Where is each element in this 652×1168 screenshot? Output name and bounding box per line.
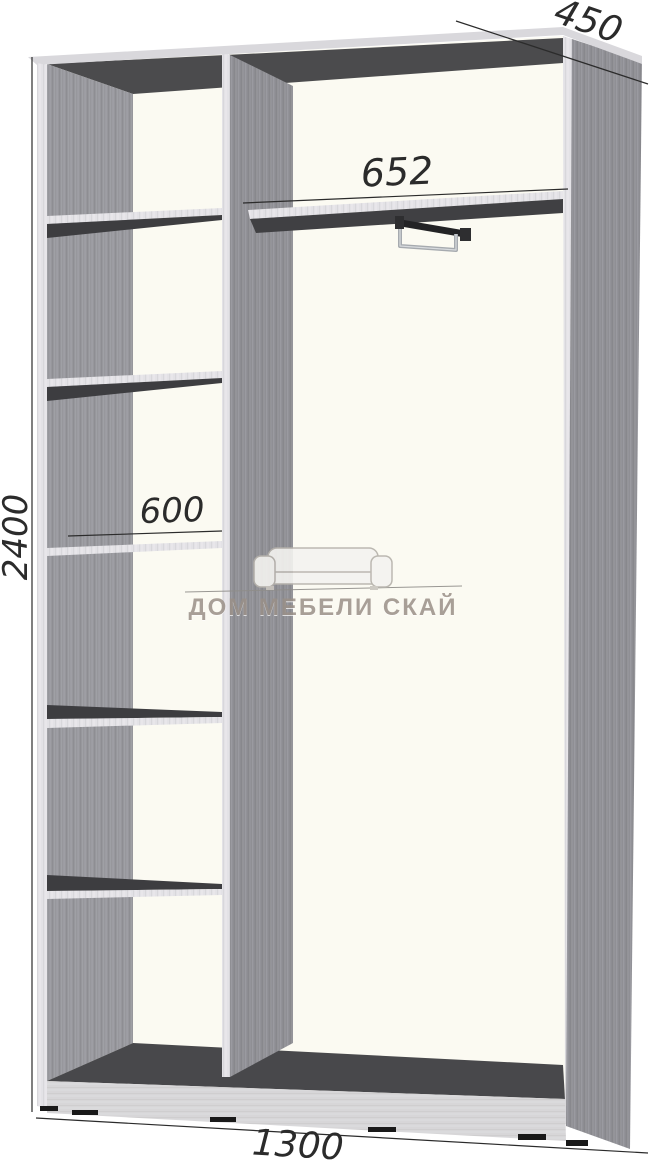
foot xyxy=(518,1134,546,1140)
dim-label-overall-width: 1300 xyxy=(251,1125,343,1166)
sofa-seat xyxy=(262,572,384,584)
hanger-mount-right xyxy=(460,228,471,241)
sofa-armrest-left xyxy=(254,556,275,587)
left-side-panel xyxy=(37,63,47,1108)
wardrobe-diagram: 2400 450 652 600 1300 ДОМ МЕБЕЛИ СКАЙ xyxy=(0,0,652,1168)
sofa-armrest-right xyxy=(371,556,392,587)
foot xyxy=(40,1106,58,1111)
foot xyxy=(72,1110,98,1115)
foot xyxy=(210,1117,236,1122)
sofa-backrest xyxy=(268,548,378,574)
sofa-foot xyxy=(370,586,378,590)
wardrobe-drawing xyxy=(0,0,652,1168)
sofa-foot xyxy=(266,586,274,590)
watermark-brand-text: ДОМ МЕБЕЛИ СКАЙ xyxy=(178,594,468,622)
dim-label-height: 2400 xyxy=(0,492,33,582)
dim-label-shelf-width: 600 xyxy=(126,492,217,529)
hanger-mount-left xyxy=(395,216,404,229)
foot xyxy=(566,1140,588,1146)
right-side-panel xyxy=(566,39,642,1149)
dim-label-top-section-width: 652 xyxy=(351,151,443,193)
foot xyxy=(368,1127,396,1132)
divider-panel-front-edge xyxy=(222,52,230,1077)
